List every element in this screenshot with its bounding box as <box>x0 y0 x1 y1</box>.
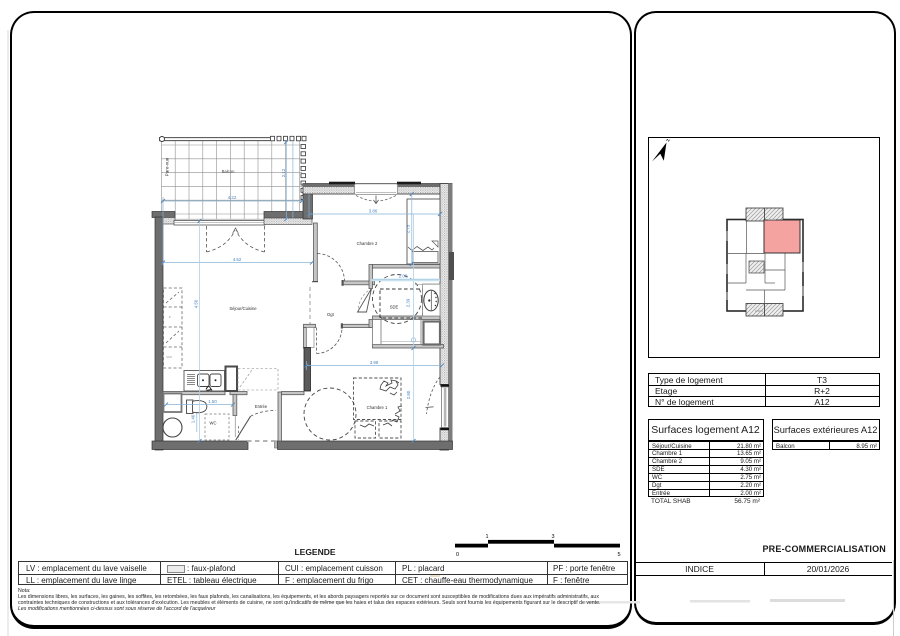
svg-text:3: 3 <box>551 534 554 540</box>
svg-text:2.80: 2.80 <box>406 390 411 399</box>
svg-text:5: 5 <box>617 552 620 558</box>
svg-text:SDE: SDE <box>390 305 399 310</box>
svg-text:1.50: 1.50 <box>208 399 217 404</box>
svg-text:4.52: 4.52 <box>233 257 242 262</box>
svg-text:Entrée: Entrée <box>255 404 268 409</box>
svg-text:Chambre 2: Chambre 2 <box>357 241 378 246</box>
svg-text:Dgt: Dgt <box>327 312 334 317</box>
svg-text:1.40: 1.40 <box>190 414 195 423</box>
svg-text:WC: WC <box>210 421 217 426</box>
svg-text:F: F <box>169 315 171 319</box>
svg-text:3.98: 3.98 <box>370 360 379 365</box>
svg-text:CUI: CUI <box>167 355 172 359</box>
svg-text:2.75: 2.75 <box>405 224 410 233</box>
svg-text:2.39: 2.39 <box>406 298 411 307</box>
svg-text:3.86: 3.86 <box>369 209 378 214</box>
svg-text:Séjour/Cuisine: Séjour/Cuisine <box>229 306 257 311</box>
svg-text:2.00: 2.00 <box>399 274 408 279</box>
svg-text:1: 1 <box>485 534 488 540</box>
svg-text:Chambre 1: Chambre 1 <box>367 405 388 410</box>
svg-text:4.50: 4.50 <box>194 299 199 308</box>
svg-text:4.22: 4.22 <box>228 195 237 200</box>
svg-text:2.12: 2.12 <box>281 168 286 177</box>
svg-text:0: 0 <box>456 552 459 558</box>
svg-text:Pare-vue: Pare-vue <box>165 157 170 176</box>
svg-text:Balcon: Balcon <box>222 169 235 174</box>
